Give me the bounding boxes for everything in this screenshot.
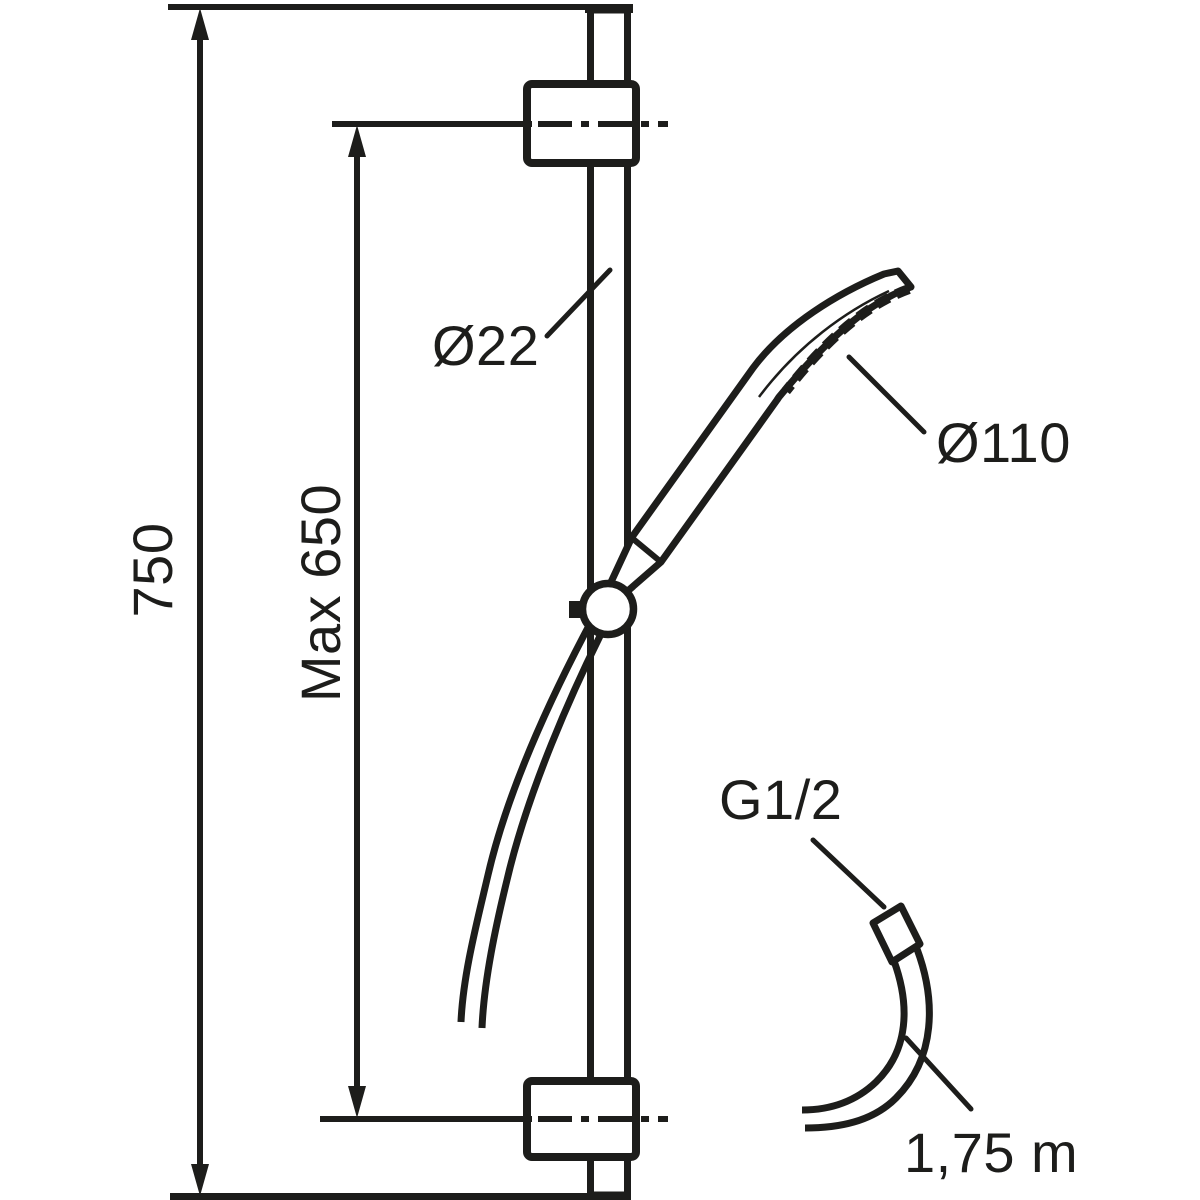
filled-marks-layer bbox=[191, 8, 584, 1196]
shower-rail-set-diagram: 750 Max 650 Ø22 Ø110 G1/2 1,75 m bbox=[0, 0, 1200, 1200]
thread-label: G1/2 bbox=[719, 768, 842, 831]
dim-max650-arrow-down bbox=[348, 1086, 366, 1118]
thread-fitting bbox=[873, 906, 920, 962]
shower-hose bbox=[461, 620, 603, 1028]
head-diameter-label: Ø110 bbox=[936, 411, 1071, 474]
dim-max650-arrow-up bbox=[348, 125, 366, 157]
dim-max650-label: Max 650 bbox=[289, 484, 352, 702]
hose-end-outer-arc bbox=[805, 949, 929, 1128]
hand-shower bbox=[605, 271, 911, 596]
head-diameter-leader bbox=[849, 357, 924, 432]
hose-length-label: 1,75 m bbox=[904, 1121, 1078, 1184]
dim-750-arrow-down bbox=[191, 1164, 209, 1196]
slider-knob bbox=[583, 584, 634, 635]
hand-shower-body bbox=[605, 271, 911, 596]
technical-drawing-canvas: 750 Max 650 Ø22 Ø110 G1/2 1,75 m bbox=[0, 0, 1200, 1200]
hose-end-inner-arc bbox=[802, 961, 904, 1110]
slider-knob-nub bbox=[569, 601, 584, 618]
thread-leader bbox=[813, 840, 884, 907]
hose-end-piece bbox=[802, 906, 929, 1128]
dim-750-arrow-up bbox=[191, 8, 209, 40]
rail-diameter-label: Ø22 bbox=[432, 314, 539, 377]
dim-750-label: 750 bbox=[121, 523, 184, 618]
